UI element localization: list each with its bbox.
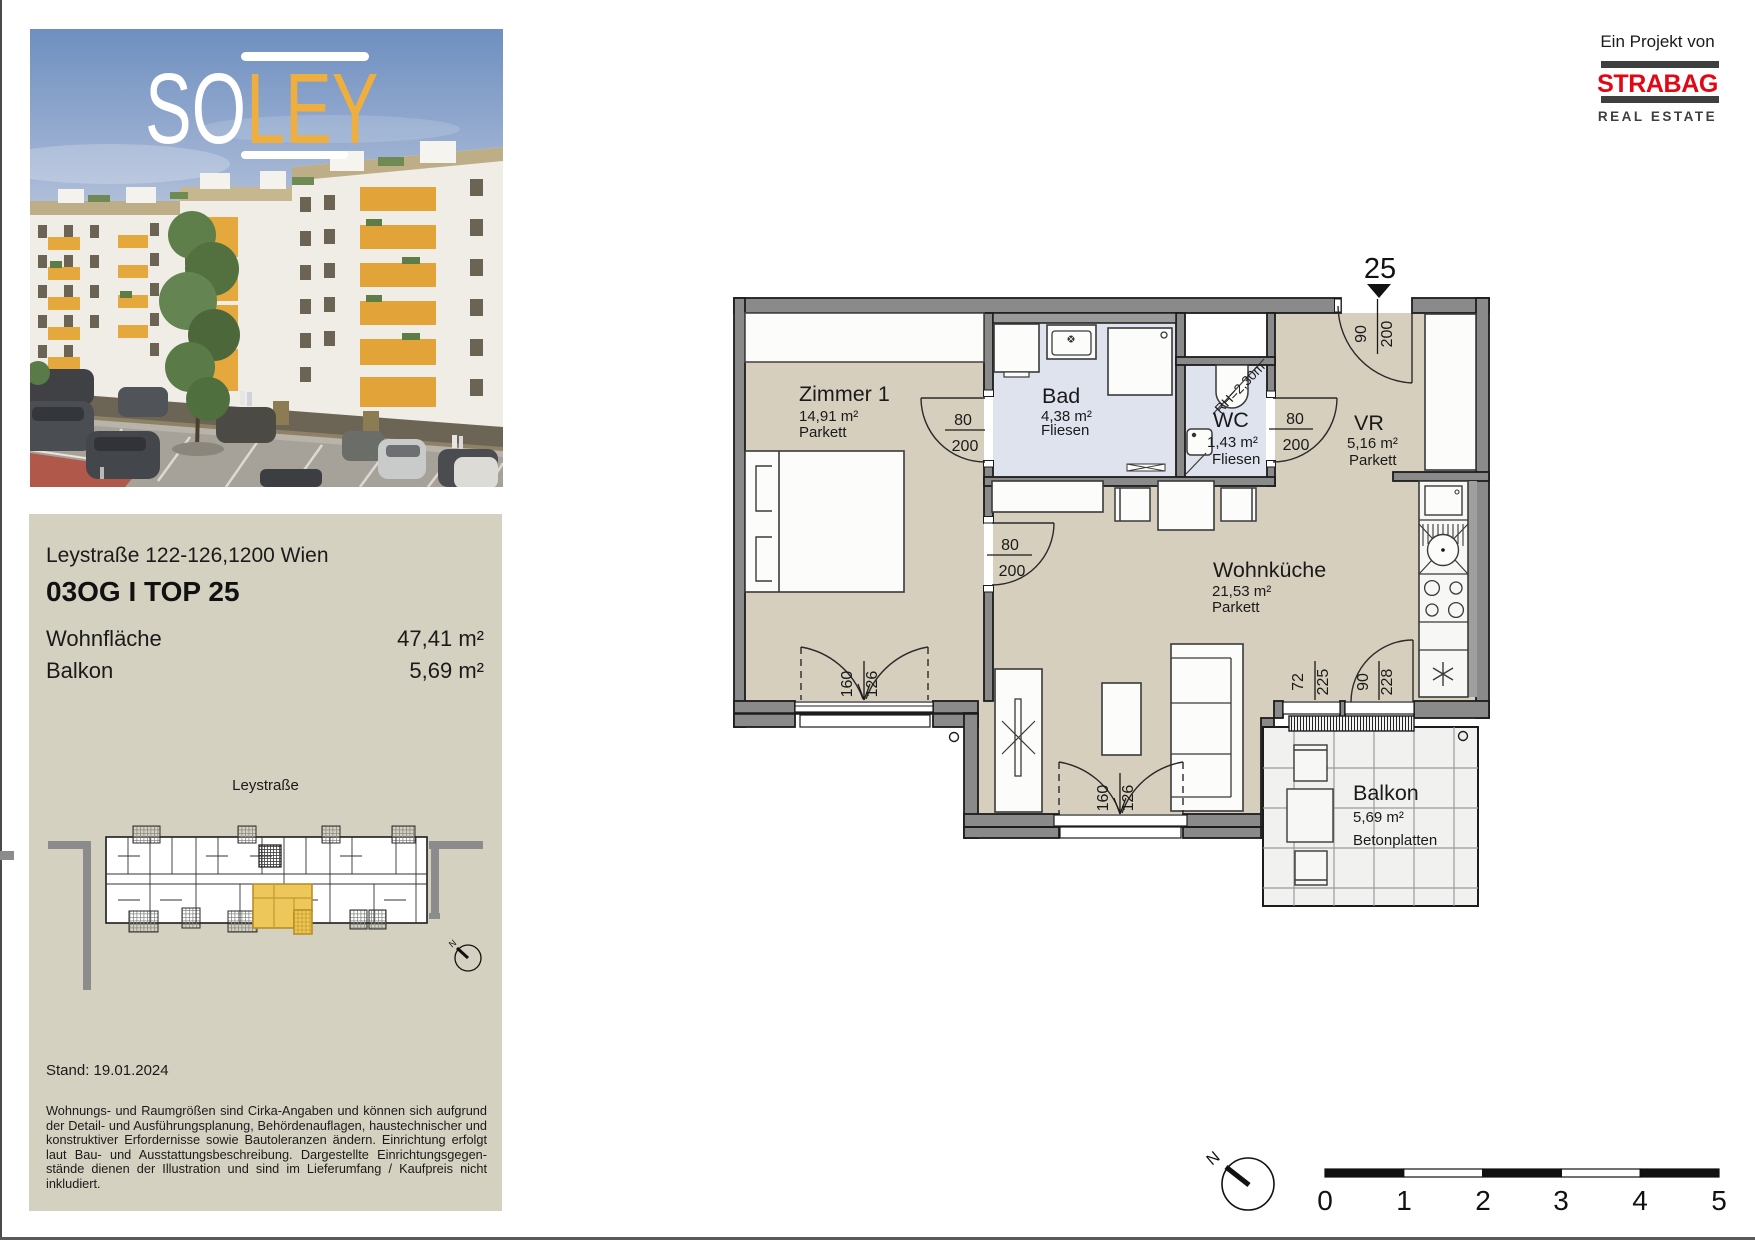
svg-text:2: 2 (1475, 1185, 1491, 1216)
svg-text:5,69 m²: 5,69 m² (1353, 809, 1404, 826)
svg-text:Betonplatten: Betonplatten (1353, 832, 1437, 849)
svg-text:200: 200 (1283, 437, 1310, 454)
svg-text:80: 80 (954, 412, 972, 429)
svg-text:Fliesen: Fliesen (1041, 422, 1089, 439)
svg-text:14,91 m²: 14,91 m² (799, 408, 858, 425)
svg-text:Wohnküche: Wohnküche (1213, 558, 1326, 582)
svg-text:126: 126 (864, 671, 881, 698)
svg-text:Fliesen: Fliesen (1212, 451, 1260, 468)
svg-text:5,16 m²: 5,16 m² (1347, 435, 1398, 452)
svg-text:0: 0 (1317, 1185, 1333, 1216)
svg-text:Parkett: Parkett (1212, 599, 1260, 616)
svg-text:Balkon: Balkon (1353, 781, 1419, 805)
svg-text:21,53 m²: 21,53 m² (1212, 583, 1271, 600)
svg-text:90: 90 (1355, 673, 1372, 691)
svg-text:Parkett: Parkett (1349, 452, 1397, 469)
svg-text:Bad: Bad (1042, 384, 1080, 408)
svg-text:VR: VR (1354, 411, 1384, 435)
svg-text:225: 225 (1315, 669, 1332, 696)
svg-text:80: 80 (1286, 411, 1304, 428)
svg-text:72: 72 (1290, 673, 1307, 691)
svg-text:N: N (1204, 1149, 1224, 1169)
svg-text:200: 200 (999, 563, 1026, 580)
svg-text:160: 160 (1095, 785, 1112, 812)
svg-text:WC: WC (1213, 408, 1249, 432)
svg-text:25: 25 (1364, 253, 1396, 285)
svg-text:200: 200 (952, 438, 979, 455)
svg-text:228: 228 (1379, 669, 1396, 696)
svg-text:4: 4 (1632, 1185, 1648, 1216)
svg-text:SOLEY: SOLEY (145, 54, 378, 165)
svg-text:1,43 m²: 1,43 m² (1207, 434, 1258, 451)
svg-text:1: 1 (1396, 1185, 1412, 1216)
svg-text:126: 126 (1120, 785, 1137, 812)
svg-text:N: N (447, 938, 458, 950)
svg-text:80: 80 (1001, 537, 1019, 554)
svg-text:160: 160 (839, 671, 856, 698)
svg-text:200: 200 (1379, 321, 1396, 348)
svg-text:5: 5 (1711, 1185, 1727, 1216)
svg-text:90: 90 (1353, 325, 1370, 343)
svg-text:3: 3 (1553, 1185, 1569, 1216)
svg-text:Parkett: Parkett (799, 424, 847, 441)
svg-text:Zimmer 1: Zimmer 1 (799, 382, 890, 406)
